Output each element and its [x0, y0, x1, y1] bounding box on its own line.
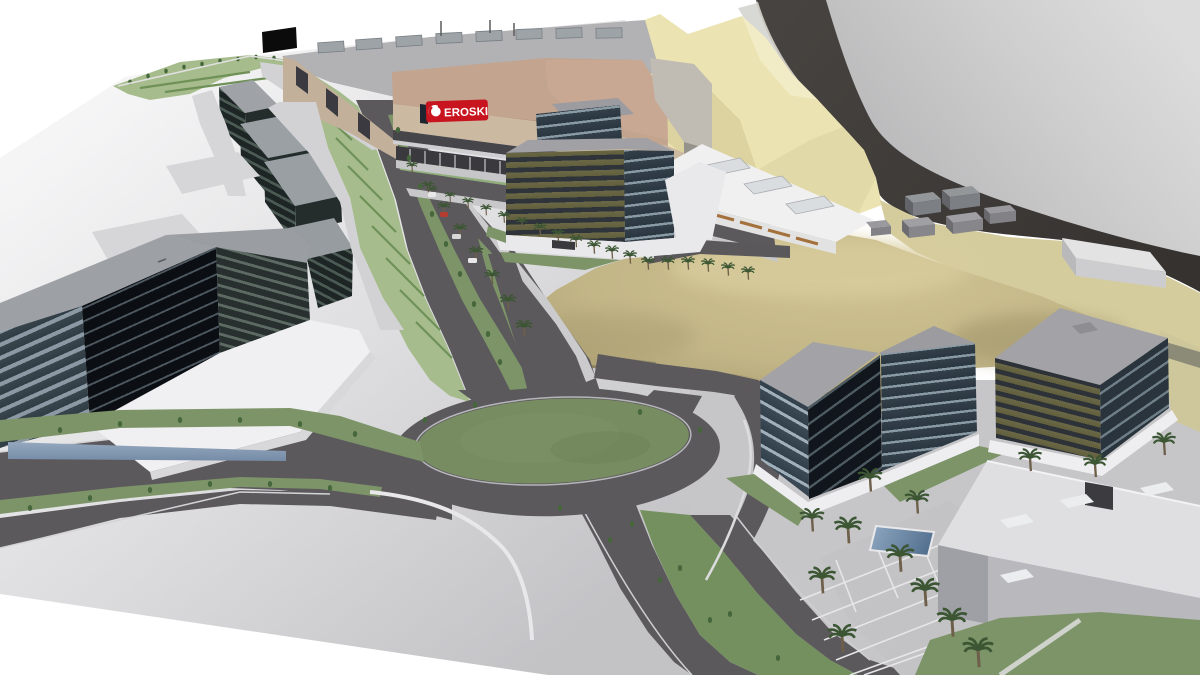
- svg-text:EROSKI: EROSKI: [444, 106, 488, 120]
